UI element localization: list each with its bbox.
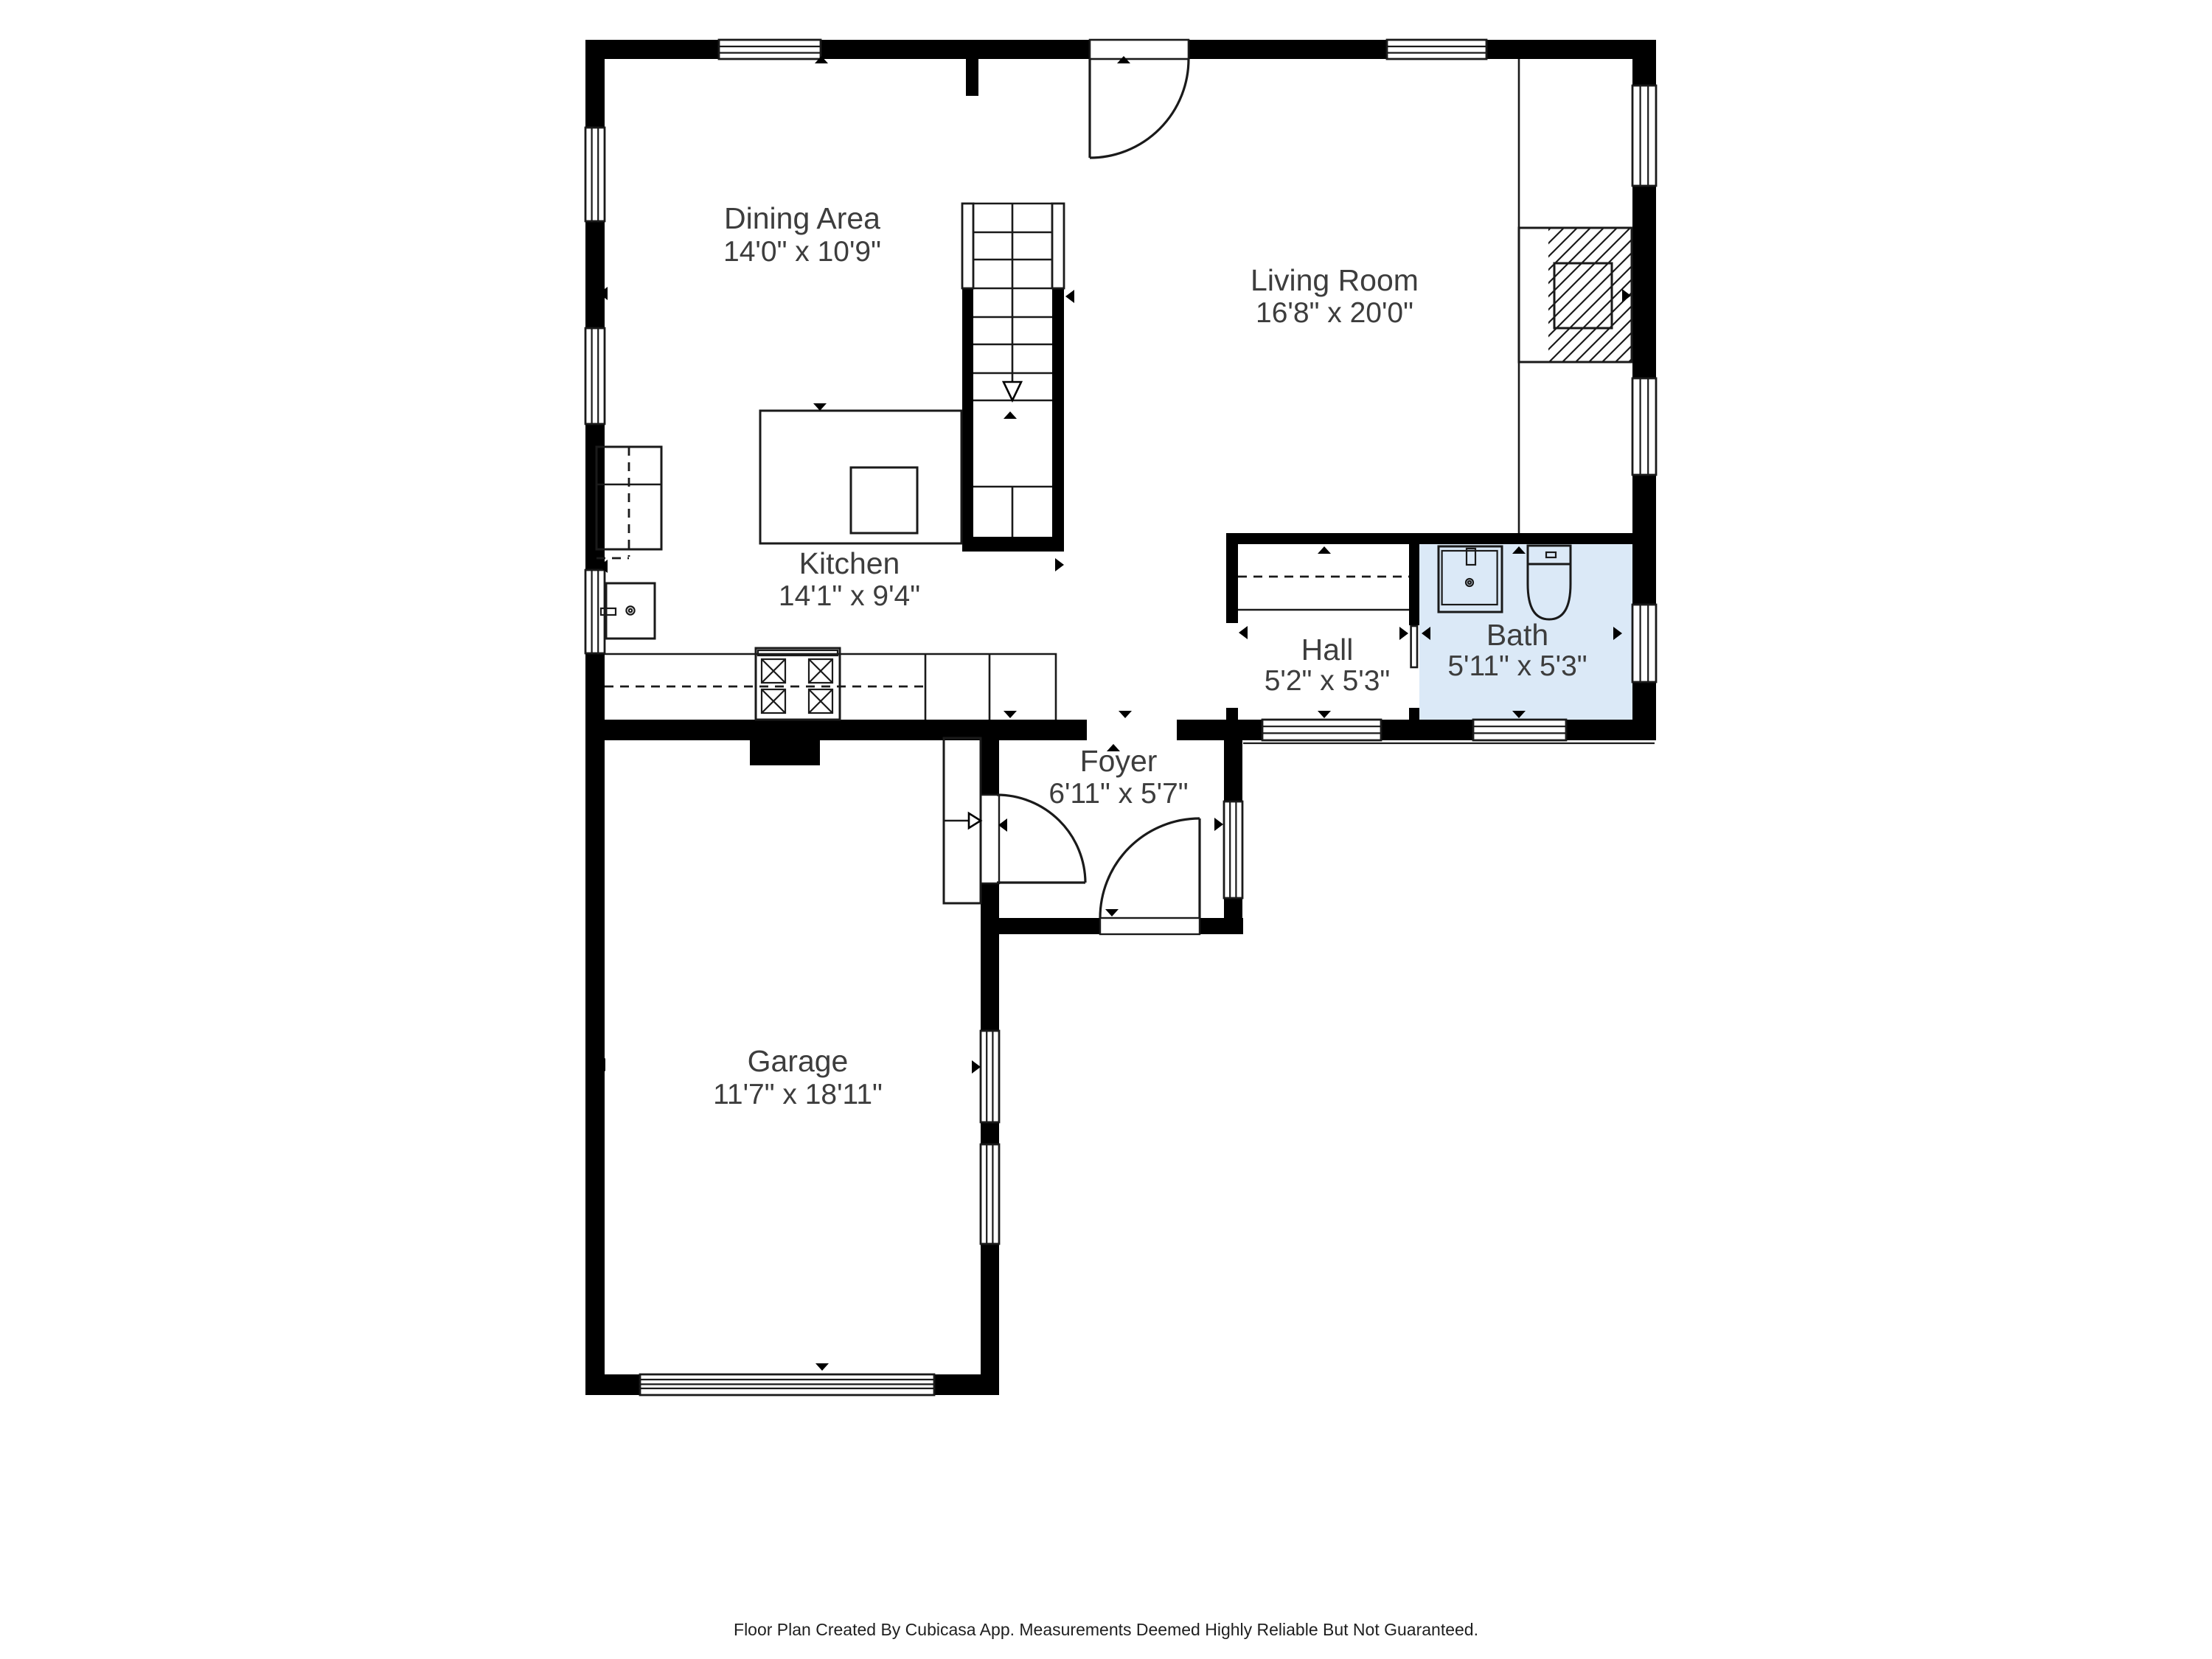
- floor-plan-canvas: Dining Area 14'0" x 10'9" Living Room 16…: [0, 0, 2212, 1659]
- window-bottom-hall: [1262, 720, 1381, 740]
- hall-closet: [1238, 577, 1409, 610]
- window-left-1: [585, 128, 605, 221]
- room-label-hall: Hall: [1301, 633, 1354, 667]
- window-garage-right-2: [981, 1144, 999, 1244]
- marker-up: [1318, 546, 1331, 554]
- room-label-dining: Dining Area: [724, 201, 880, 235]
- window-right-1: [1632, 86, 1656, 186]
- room-dims-foyer: 6'11" x 5'7": [1048, 778, 1188, 810]
- room-dims-kitchen: 14'1" x 9'4": [779, 580, 920, 612]
- marker-right: [1055, 558, 1064, 571]
- marker-down: [1318, 711, 1331, 718]
- stair-landing-marker: [1004, 411, 1017, 419]
- garage-entry-steps: [944, 738, 981, 903]
- entry-arrow-icon: [969, 813, 981, 828]
- window-top-dining: [719, 40, 821, 59]
- stair-direction-arrowhead: [1004, 382, 1021, 400]
- stove-icon: [756, 648, 840, 720]
- room-label-garage: Garage: [748, 1044, 849, 1078]
- room-dims-living: 16'8" x 20'0": [1256, 297, 1413, 329]
- kitchen-island: [760, 411, 961, 543]
- marker-down: [1105, 909, 1119, 917]
- window-right-bath: [1632, 605, 1656, 682]
- room-label-living: Living Room: [1251, 263, 1419, 297]
- room-label-bath: Bath: [1486, 618, 1548, 652]
- room-dims-garage: 11'7" x 18'11": [713, 1079, 883, 1110]
- marker-down: [1004, 711, 1017, 718]
- room-label-foyer: Foyer: [1080, 744, 1158, 778]
- marker-down: [1119, 711, 1132, 718]
- stairs: [962, 204, 1064, 537]
- footer-disclaimer: Floor Plan Created By Cubicasa App. Meas…: [734, 1620, 1478, 1639]
- window-bottom-bath: [1473, 720, 1566, 740]
- room-label-kitchen: Kitchen: [799, 546, 900, 580]
- stair-treads: [973, 204, 1052, 537]
- floor-plan-page: Dining Area 14'0" x 10'9" Living Room 16…: [0, 0, 2212, 1659]
- garage-door: [640, 1374, 934, 1395]
- window-right-2: [1632, 378, 1656, 475]
- marker-right: [1214, 818, 1223, 831]
- room-dims-dining: 14'0" x 10'9": [723, 236, 881, 268]
- marker-down: [815, 1363, 829, 1371]
- door-leaf: [1411, 626, 1417, 667]
- marker-left: [1065, 290, 1074, 303]
- left-counter: [597, 447, 661, 558]
- island-cooktop: [851, 467, 917, 533]
- marker-right: [1399, 627, 1408, 640]
- marker-left: [1239, 626, 1248, 639]
- window-foyer-right: [1224, 801, 1242, 898]
- window-top-living: [1387, 40, 1486, 59]
- kitchen-sink-icon: [601, 583, 655, 639]
- window-garage-right-1: [981, 1031, 999, 1122]
- window-left-2: [585, 328, 605, 424]
- door-living-top: [1090, 40, 1189, 158]
- marker-right: [972, 1060, 981, 1074]
- room-dims-hall: 5'2" x 5'3": [1265, 665, 1391, 697]
- door-hall-bath: [1409, 625, 1419, 708]
- room-dims-bath: 5'11" x 5'3": [1447, 650, 1587, 682]
- fireplace-icon: [1519, 59, 1632, 533]
- door-foyer-entry: [1100, 818, 1200, 934]
- room-labels: Dining Area 14'0" x 10'9" Living Room 16…: [713, 201, 1587, 1110]
